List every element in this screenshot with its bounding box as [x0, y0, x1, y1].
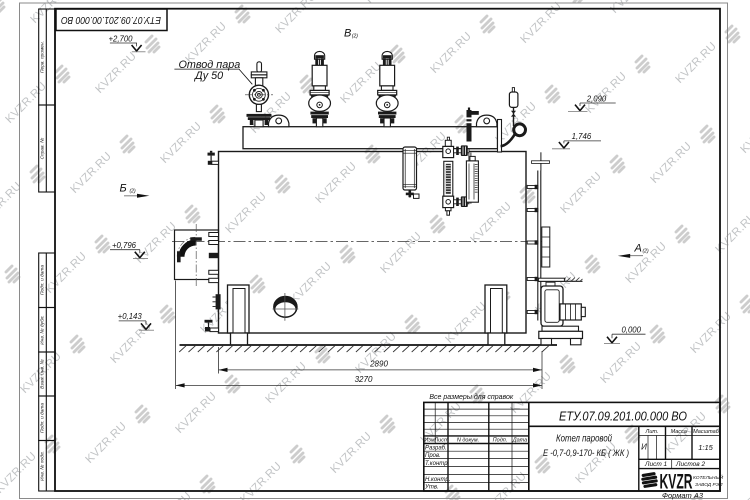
svg-text:Справ. №: Справ. № [40, 138, 46, 160]
svg-text:Все размеры для справок: Все размеры для справок [429, 393, 514, 401]
svg-text:Разраб.: Разраб. [425, 446, 447, 452]
svg-text:N докум.: N докум. [457, 437, 479, 443]
svg-text:1,746: 1,746 [572, 132, 592, 141]
svg-text:Подп. и дата: Подп. и дата [40, 403, 46, 433]
svg-text:1:15: 1:15 [698, 443, 713, 452]
svg-text:Ду 50: Ду 50 [194, 70, 223, 82]
svg-text:Листов 2: Листов 2 [675, 461, 705, 468]
svg-text:Инв. № подл.: Инв. № подл. [40, 451, 46, 481]
svg-text:+0,796: +0,796 [112, 241, 137, 250]
svg-text:Масса: Масса [671, 429, 687, 435]
svg-text:Масштаб: Масштаб [693, 429, 720, 435]
svg-text:+0,143: +0,143 [118, 312, 143, 321]
svg-text:Т.контр.: Т.контр. [425, 461, 449, 467]
svg-text:ЗАВОД РЭП: ЗАВОД РЭП [695, 482, 723, 488]
svg-text:А: А [634, 242, 642, 254]
svg-text:(2): (2) [352, 34, 358, 40]
svg-text:Б: Б [120, 182, 127, 194]
svg-text:Лист 1: Лист 1 [644, 461, 668, 468]
svg-text:В: В [344, 27, 351, 39]
svg-text:Лист: Лист [433, 437, 449, 443]
svg-text:Формат А3: Формат А3 [662, 491, 704, 500]
svg-text:Подп.: Подп. [493, 437, 508, 443]
svg-text:Подп. и дата: Подп. и дата [40, 265, 46, 295]
svg-text:Взам. инв. №: Взам. инв. № [40, 359, 46, 389]
svg-text:(2): (2) [643, 248, 649, 254]
svg-text:0,000: 0,000 [621, 326, 641, 335]
svg-text:Н.контр.: Н.контр. [425, 477, 450, 483]
svg-text:Изм: Изм [424, 437, 434, 443]
svg-text:3270: 3270 [355, 375, 373, 384]
svg-text:Перв. примен.: Перв. примен. [40, 41, 46, 73]
svg-text:Дата: Дата [512, 437, 528, 443]
svg-text:(2): (2) [130, 189, 136, 195]
svg-text:Инв. № дубл.: Инв. № дубл. [40, 315, 46, 345]
svg-text:+2,700: +2,700 [108, 34, 133, 43]
svg-text:2890: 2890 [369, 360, 388, 369]
svg-text:Лит.: Лит. [645, 429, 659, 435]
svg-text:Утв.: Утв. [424, 485, 439, 491]
svg-text:ЕТУ.07.09.201.00.000 ВО: ЕТУ.07.09.201.00.000 ВО [559, 409, 687, 424]
svg-text:KVZR: KVZR [660, 470, 693, 494]
svg-text:Е -0,7-0,9-170- КБ ( ЖК ): Е -0,7-0,9-170- КБ ( ЖК ) [543, 448, 629, 458]
svg-text:Котел паровой: Котел паровой [556, 434, 612, 445]
svg-text:ЕТУ.07.09.201.00.000 ВО: ЕТУ.07.09.201.00.000 ВО [61, 14, 161, 26]
svg-text:2,090: 2,090 [586, 94, 607, 103]
svg-text:Пров.: Пров. [425, 453, 441, 459]
svg-text:И: И [641, 443, 647, 452]
